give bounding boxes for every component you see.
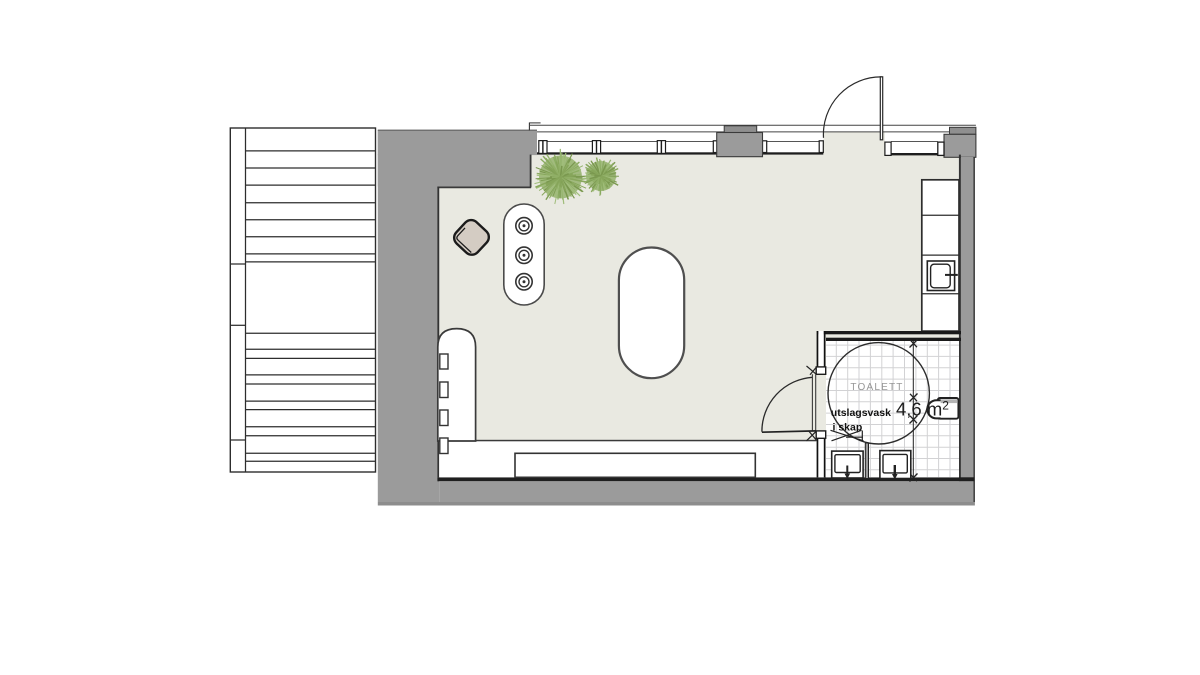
svg-text:TOALETT: TOALETT: [850, 382, 903, 393]
svg-text:utslagsvask: utslagsvask: [831, 407, 891, 419]
svg-text:4,6 m2: 4,6 m2: [896, 399, 949, 420]
